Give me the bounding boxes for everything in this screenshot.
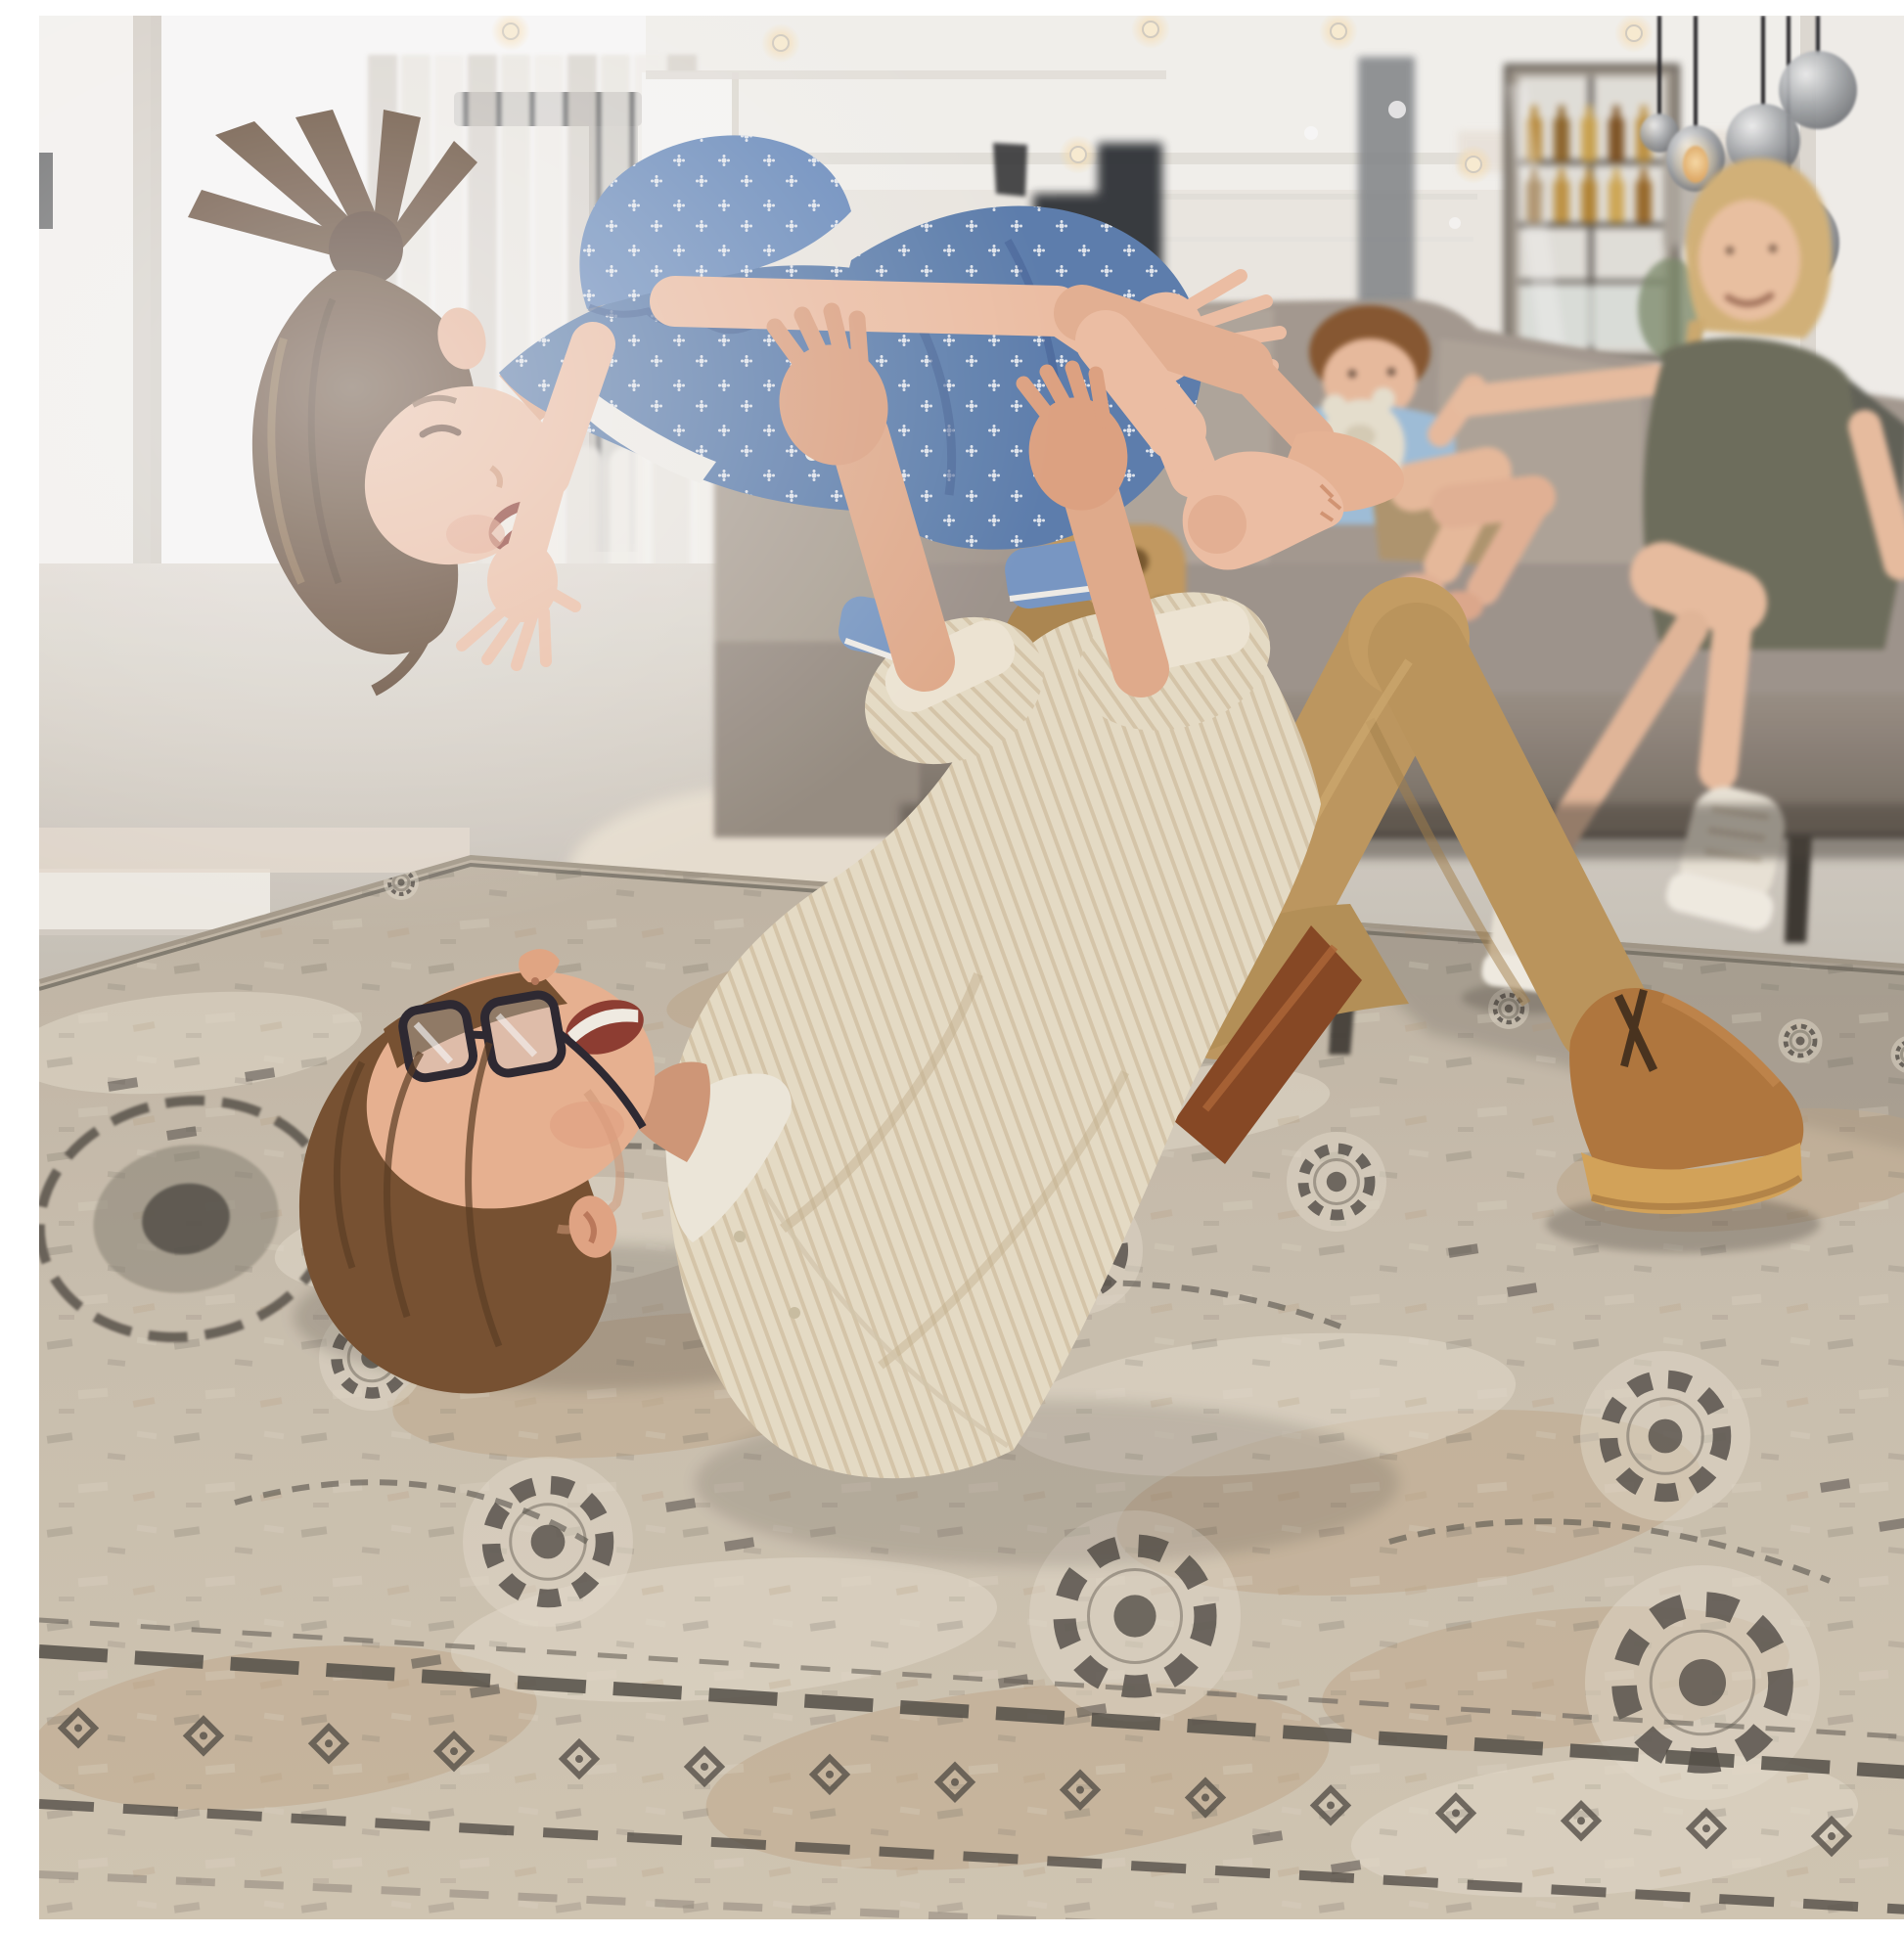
family-livingroom-photo xyxy=(39,16,1904,1919)
photo-canvas xyxy=(39,16,1904,1919)
vignette xyxy=(39,16,1904,1919)
